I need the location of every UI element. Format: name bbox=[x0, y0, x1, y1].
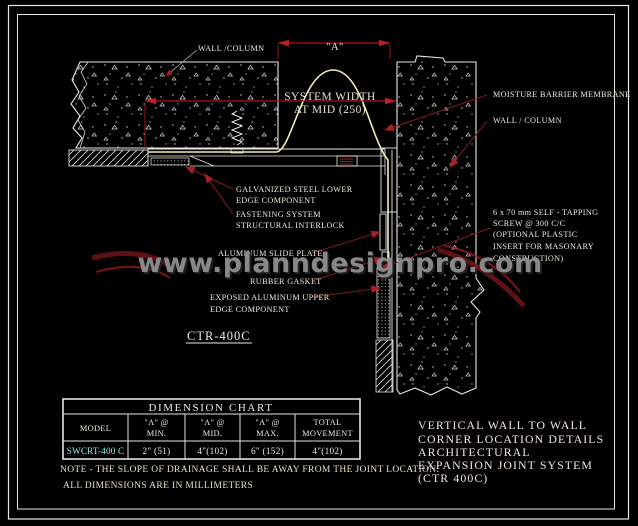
title-line-5: (CTR 400C) bbox=[418, 471, 488, 485]
label-dim-a: "A" bbox=[326, 42, 344, 53]
interlock-box bbox=[337, 156, 357, 166]
joint-assembly-horizontal bbox=[148, 149, 385, 175]
upper-edge-component bbox=[381, 148, 397, 212]
label-fastening-2: STRUCTURAL INTERLOCK bbox=[236, 221, 345, 230]
title-line-2: CORNER LOCATION DETAILS bbox=[418, 432, 604, 446]
label-galvanized-1: GALVANIZED STEEL LOWER bbox=[236, 185, 353, 194]
finish-hatch-left bbox=[69, 150, 148, 166]
table-title: DIMENSION CHART bbox=[148, 402, 273, 414]
label-moisture-membrane: MOISTURE BARRIER MEMBRANE bbox=[493, 90, 631, 99]
cell-a-mid: 4"(102) bbox=[197, 446, 227, 456]
label-exposed-2: EDGE COMPONENT bbox=[210, 305, 290, 314]
title-block: VERTICAL WALL TO WALL CORNER LOCATION DE… bbox=[418, 418, 604, 485]
col-total-2: MOVEMENT bbox=[302, 429, 353, 438]
label-wall-column-right: WALL / COLUMN bbox=[493, 116, 562, 125]
label-system-width-1: SYSTEM WIDTH bbox=[284, 91, 376, 103]
label-galvanized-2: EDGE COMPONENT bbox=[236, 196, 316, 205]
col-a-mid-1: "A" @ bbox=[200, 418, 224, 427]
detail-name-text: CTR-400C bbox=[187, 329, 251, 343]
col-model: MODEL bbox=[80, 424, 111, 433]
table-row: SWCRT-400 C 2" (51) 4"(102) 6" (152) 4"(… bbox=[67, 446, 343, 456]
label-screw-3: (OPTIONAL PLASTIC bbox=[493, 230, 578, 239]
title-line-3: ARCHITECTURAL bbox=[418, 445, 531, 459]
cell-model: SWCRT-400 C bbox=[67, 446, 125, 456]
cell-a-min: 2" (51) bbox=[142, 446, 170, 456]
col-a-max-2: MAX. bbox=[256, 429, 279, 438]
col-a-min-2: MIN. bbox=[147, 429, 167, 438]
note-dimensions: ALL DIMENSIONS ARE IN MILLIMETERS bbox=[63, 481, 253, 491]
col-a-mid-2: MID. bbox=[203, 429, 223, 438]
title-line-1: VERTICAL WALL TO WALL bbox=[418, 418, 587, 432]
right-wall bbox=[392, 56, 484, 395]
col-a-min-1: "A" @ bbox=[144, 418, 168, 427]
cell-a-max: 6" (152) bbox=[251, 446, 284, 456]
label-system-width-2: AT MID (250) bbox=[294, 104, 366, 116]
finish-hatch-right bbox=[376, 340, 393, 392]
label-exposed-1: EXPOSED ALUMINUM UPPER bbox=[210, 293, 330, 302]
leader-galvanized bbox=[186, 167, 233, 189]
label-screw-2: SCREW @ 300 C/C bbox=[493, 219, 566, 228]
top-wall bbox=[71, 62, 278, 148]
slide-plate bbox=[380, 214, 386, 250]
watermark-text: www.planndesignpro.com bbox=[137, 248, 542, 279]
gasket-strip bbox=[151, 158, 189, 165]
cad-drawing: WALL /COLUMN "A" SYSTEM WIDTH AT MID (25… bbox=[0, 0, 638, 526]
cad-sheet: WALL /COLUMN "A" SYSTEM WIDTH AT MID (25… bbox=[0, 0, 638, 526]
cell-total: 4"(102) bbox=[312, 446, 342, 456]
dimension-chart-table: DIMENSION CHART MODEL "A" @ MIN. "A" @ M… bbox=[63, 399, 360, 459]
title-line-4: EXPANSION JOINT SYSTEM bbox=[418, 458, 593, 472]
drainage-slope-line bbox=[190, 156, 214, 166]
col-a-max-1: "A" @ bbox=[255, 418, 279, 427]
col-total-1: TOTAL bbox=[313, 418, 341, 427]
label-fastening-1: FASTENING SYSTEM bbox=[236, 210, 321, 219]
detail-name: CTR-400C bbox=[186, 329, 252, 343]
label-wall-column-top: WALL /COLUMN bbox=[198, 44, 264, 53]
notes: NOTE - THE SLOPE OF DRAINAGE SHALL BE AW… bbox=[60, 465, 439, 491]
leader-fastening bbox=[205, 174, 233, 214]
note-drainage: NOTE - THE SLOPE OF DRAINAGE SHALL BE AW… bbox=[60, 465, 439, 475]
label-screw-1: 6 x 70 mm SELF - TAPPING bbox=[493, 208, 598, 217]
